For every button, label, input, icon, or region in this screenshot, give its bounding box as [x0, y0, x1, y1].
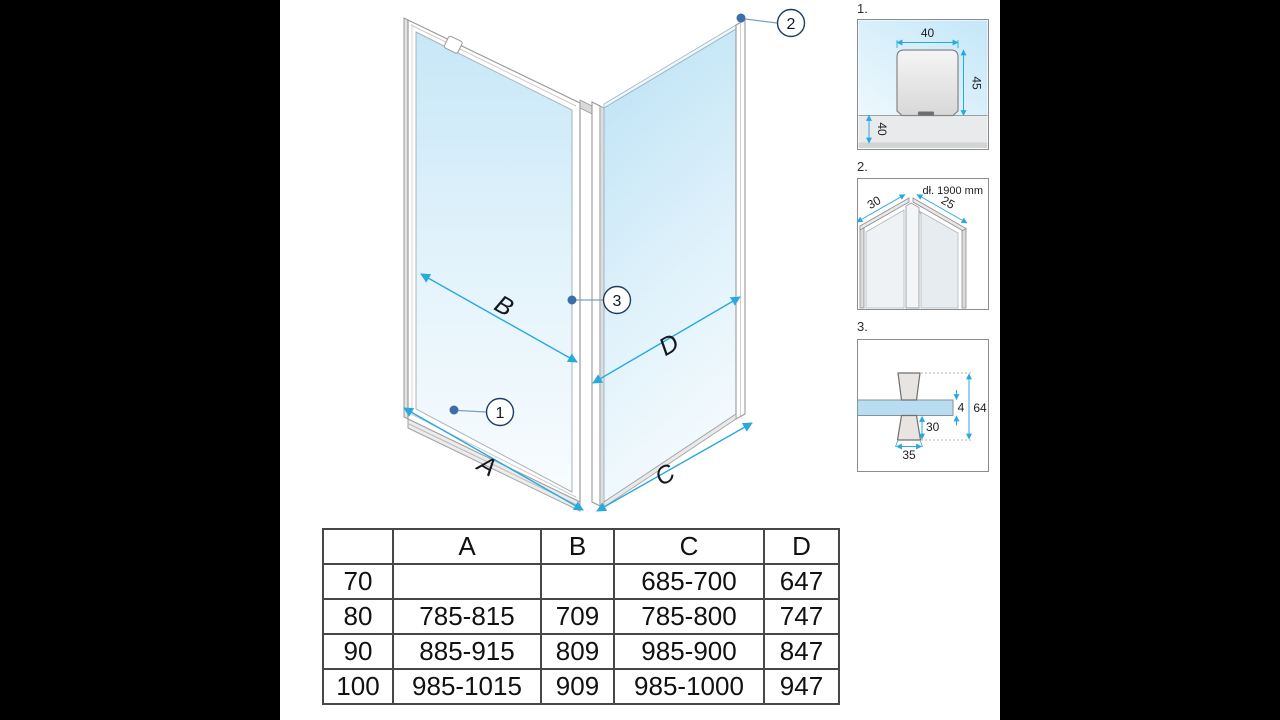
side-panel: [604, 20, 745, 507]
left-black-bar: [0, 0, 280, 720]
table-row: 90 885-915 809 985-900 847: [323, 634, 839, 669]
detail-2-index: 2.: [857, 159, 868, 174]
table-cell-size: 80: [323, 599, 393, 634]
table-cell: 909: [541, 669, 614, 704]
right-black-bar: [1000, 0, 1280, 720]
table-cell: 685-700: [614, 564, 764, 599]
detail-1-profile: [897, 50, 958, 116]
table-cell: 809: [541, 634, 614, 669]
table-cell: 847: [764, 634, 839, 669]
detail-3-dim-lower: 30: [926, 420, 940, 434]
callout-3-number: 3: [613, 293, 622, 310]
detail-3-index: 3.: [857, 319, 868, 334]
detail-3-dim-knob: 35: [902, 448, 916, 462]
table-cell: 747: [764, 599, 839, 634]
table-cell: 985-1015: [393, 669, 541, 704]
table-cell: 985-1000: [614, 669, 764, 704]
corner-post: [580, 100, 604, 508]
detail-1-index: 1.: [857, 1, 868, 16]
callout-3-dot: [568, 296, 577, 305]
table-cell: 647: [764, 564, 839, 599]
table-cell-size: 100: [323, 669, 393, 704]
table-cell: 785-815: [393, 599, 541, 634]
detail-1-dim-height: 45: [970, 76, 984, 90]
table-row: 100 985-1015 909 985-1000 947: [323, 669, 839, 704]
door-panel: [404, 18, 580, 511]
detail-3-drawing: 3. 64 4 30 35: [850, 318, 995, 478]
table-cell: 947: [764, 669, 839, 704]
detail-1-drawing: 1. 40 45 40: [850, 0, 995, 158]
table-header-row: A B C D: [323, 529, 839, 564]
callout-2-number: 2: [787, 16, 796, 33]
table-header-d: D: [764, 529, 839, 564]
callout-1-number: 1: [496, 405, 505, 422]
detail-2-length-note: dł. 1900 mm: [922, 185, 983, 197]
table-cell-size: 90: [323, 634, 393, 669]
detail-3-knob-upper: [898, 373, 920, 400]
detail-1-dim-floor: 40: [875, 122, 889, 136]
table-cell: 885-915: [393, 634, 541, 669]
table-header-b: B: [541, 529, 614, 564]
detail-3-knob-lower: [898, 416, 921, 441]
detail-3-dim-total: 64: [973, 401, 987, 415]
callout-2: 2: [737, 10, 805, 37]
table-row: 80 785-815 709 785-800 747: [323, 599, 839, 634]
technical-drawing-page: A B C D 1 2 3: [0, 0, 1280, 720]
detail-3-dim-glass: 4: [958, 401, 965, 415]
table-header-blank: [323, 529, 393, 564]
callout-1-dot: [450, 406, 459, 415]
table-cell: [541, 564, 614, 599]
detail-2-drawing: 2. dł. 1900 mm 30 25: [850, 158, 995, 316]
table-cell: 985-900: [614, 634, 764, 669]
table-header-c: C: [614, 529, 764, 564]
detail-3-glass-bar: [858, 400, 954, 416]
main-shower-diagram: A B C D 1 2 3: [388, 0, 850, 520]
table-header-a: A: [393, 529, 541, 564]
table-cell: 785-800: [614, 599, 764, 634]
callout-2-dot: [737, 14, 746, 23]
detail-1-dim-width: 40: [921, 26, 935, 40]
table-cell: 709: [541, 599, 614, 634]
table-cell: [393, 564, 541, 599]
dimensions-table: A B C D 70 685-700 647 80 785-815 709 78…: [322, 528, 840, 705]
table-row: 70 685-700 647: [323, 564, 839, 599]
table-cell-size: 70: [323, 564, 393, 599]
